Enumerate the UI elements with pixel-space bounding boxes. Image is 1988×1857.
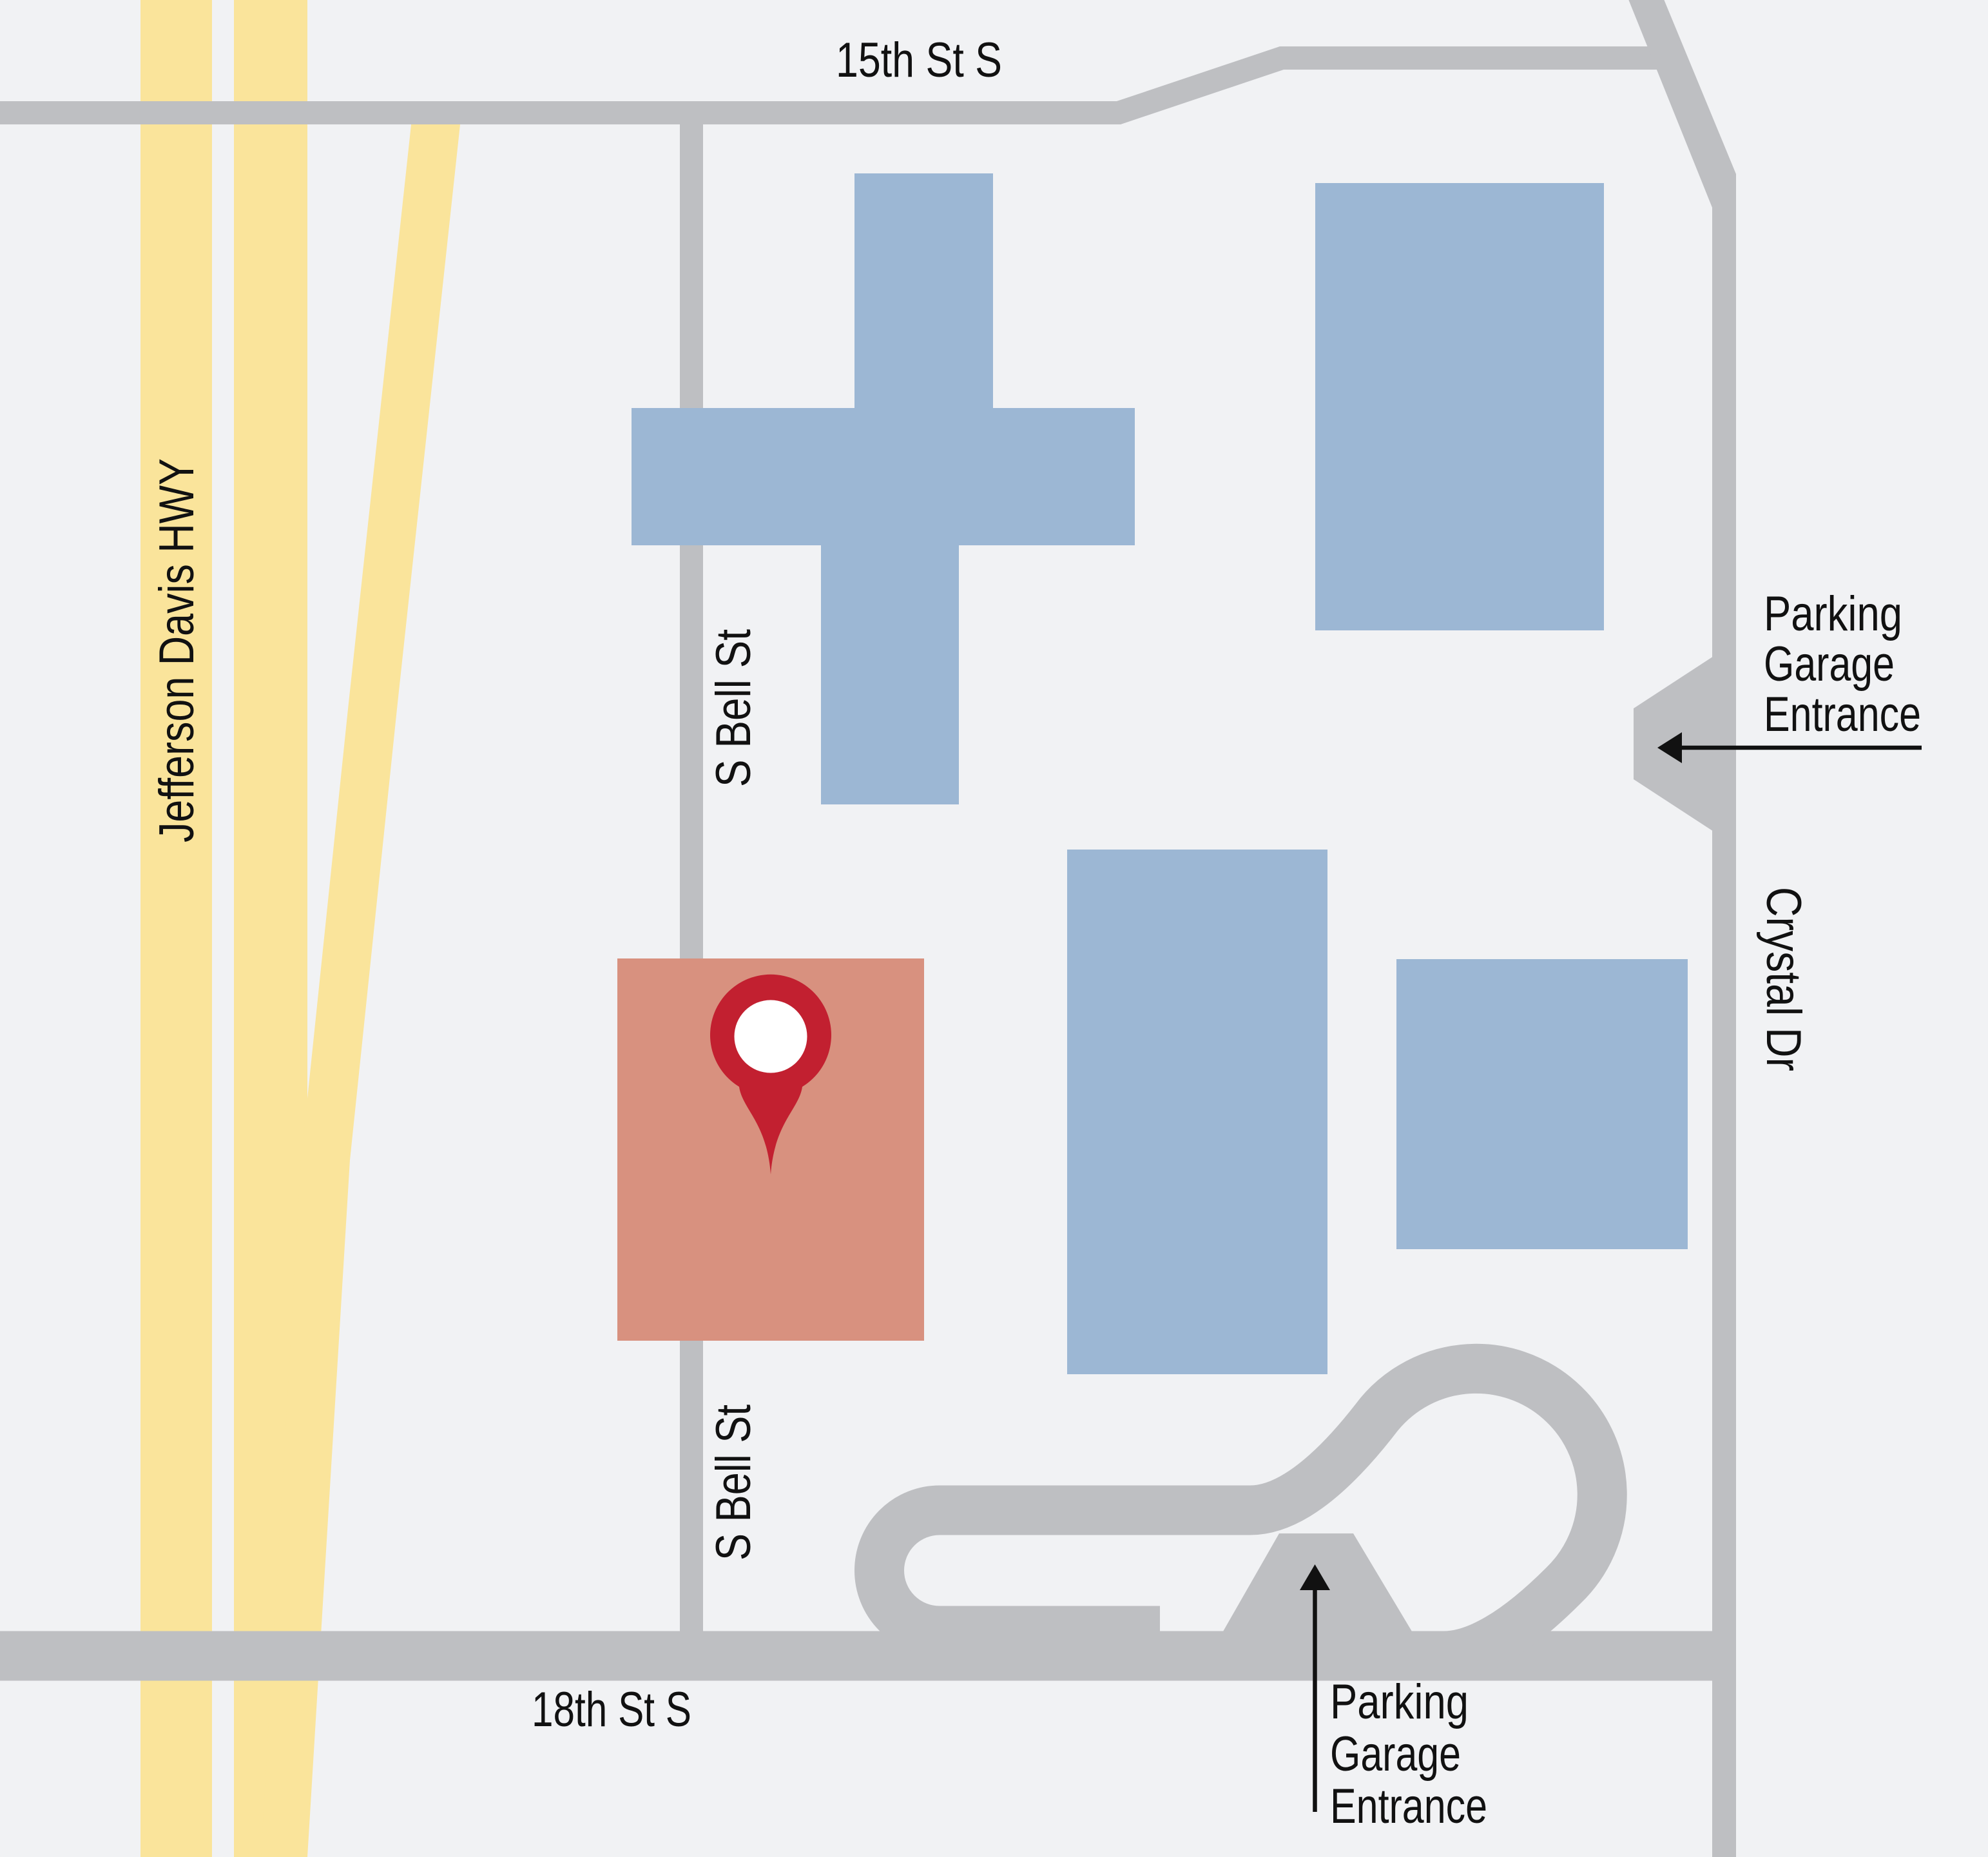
svg-text:Garage: Garage: [1330, 1727, 1461, 1782]
svg-text:Parking: Parking: [1764, 587, 1902, 641]
svg-text:15th St S: 15th St S: [836, 33, 1002, 88]
svg-text:Jefferson Davis HWY: Jefferson Davis HWY: [150, 458, 204, 842]
svg-text:Crystal Dr: Crystal Dr: [1756, 887, 1811, 1071]
svg-text:Entrance: Entrance: [1764, 687, 1921, 742]
svg-text:18th St S: 18th St S: [532, 1682, 691, 1737]
svg-text:Parking: Parking: [1330, 1675, 1469, 1729]
svg-text:Entrance: Entrance: [1330, 1779, 1487, 1834]
svg-text:S Bell St: S Bell St: [706, 1405, 761, 1560]
svg-text:Garage: Garage: [1764, 637, 1895, 692]
svg-text:S Bell St: S Bell St: [706, 629, 761, 787]
